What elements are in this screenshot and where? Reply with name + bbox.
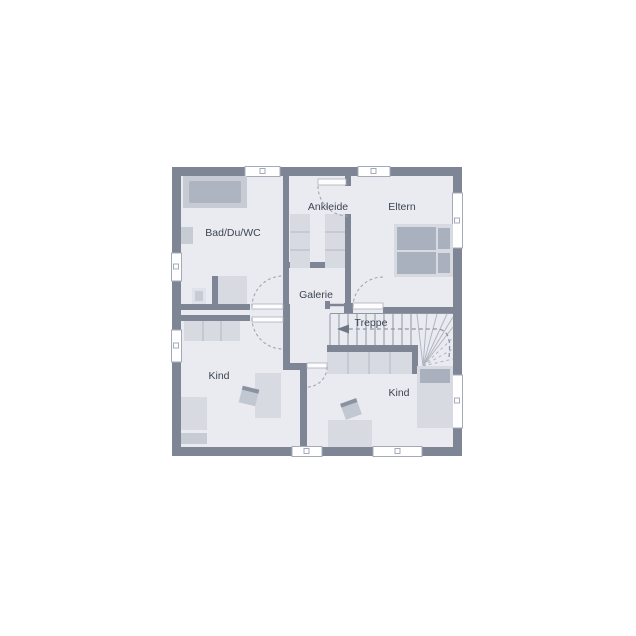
wall-shower-stub	[212, 276, 218, 305]
door-leaf-bath	[252, 304, 283, 309]
wall-kind-left-east	[283, 321, 290, 370]
window-bottom-1	[292, 447, 322, 457]
door-leaf-eltern	[353, 303, 383, 309]
desk	[328, 420, 372, 447]
door-leaf-kind-right	[307, 363, 327, 368]
wall-door-cap	[283, 304, 290, 321]
label-kind-right: Kind	[388, 387, 409, 399]
wardrobe-left	[290, 214, 310, 268]
washbasin	[181, 227, 193, 244]
window-right-2	[453, 375, 463, 428]
wardrobe-right	[325, 214, 345, 268]
door-leaf-kind-left	[252, 317, 283, 322]
label-bad: Bad/Du/WC	[205, 227, 261, 239]
window-top-1	[245, 167, 280, 177]
wall-cap-eltern-door	[344, 303, 353, 313]
under-stair-closet	[327, 352, 412, 374]
shower	[218, 276, 247, 304]
desk	[181, 397, 207, 430]
window-bottom-2	[373, 447, 422, 457]
label-galerie: Galerie	[299, 289, 333, 301]
eltern-furniture	[394, 224, 453, 277]
label-eltern: Eltern	[388, 201, 416, 213]
floor-plan-drawing: Bad/Du/WC Ankleide Eltern Galerie Treppe…	[0, 0, 636, 636]
floor-plan-page: Bad/Du/WC Ankleide Eltern Galerie Treppe…	[0, 0, 636, 636]
single-bed	[255, 373, 281, 418]
window-top-2	[358, 167, 390, 177]
wardrobe	[184, 321, 240, 341]
window-right-1	[453, 193, 463, 248]
wall-kind-left-north	[172, 315, 250, 321]
wall-eltern-south	[383, 307, 462, 313]
pillow	[420, 369, 450, 383]
pillow-2	[438, 253, 450, 273]
wall-bath-east	[283, 176, 289, 310]
label-kind-left: Kind	[208, 370, 229, 382]
label-ankleide: Ankleide	[308, 201, 348, 213]
label-treppe: Treppe	[355, 317, 388, 329]
mattress-1	[397, 227, 436, 250]
toilet-seat	[195, 291, 203, 301]
door-leaf-ankleide	[318, 179, 346, 185]
shelf	[181, 433, 207, 444]
mattress-2	[397, 252, 436, 274]
window-left-1	[172, 253, 182, 281]
wall-kids-divider	[300, 363, 307, 447]
wall-bath-south	[172, 304, 250, 310]
pillow-1	[438, 228, 450, 249]
window-left-2	[172, 330, 182, 362]
wall-under-stair	[327, 345, 415, 352]
bathtub	[189, 181, 241, 203]
